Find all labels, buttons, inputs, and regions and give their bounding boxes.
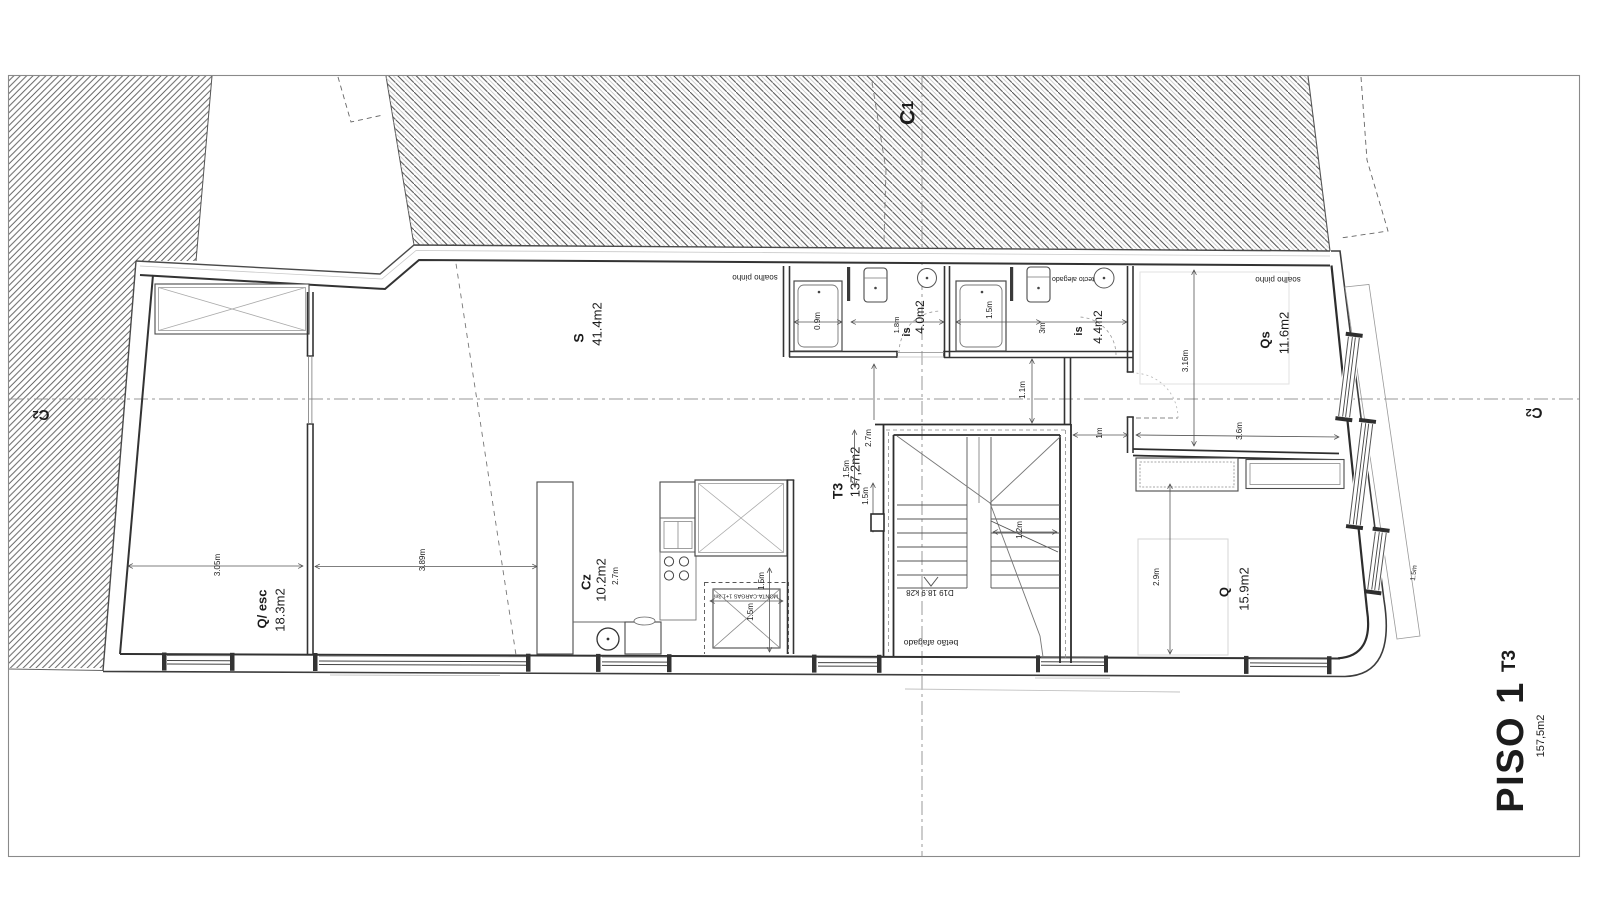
svg-text:soalho pinho: soalho pinho	[732, 273, 778, 282]
svg-text:1m: 1m	[1095, 427, 1104, 438]
svg-text:2.7m: 2.7m	[611, 567, 620, 585]
svg-text:3.16m: 3.16m	[1181, 350, 1190, 373]
svg-text:C2: C2	[33, 406, 50, 423]
svg-text:1.5m: 1.5m	[861, 487, 870, 505]
svg-text:3m: 3m	[1038, 322, 1047, 333]
svg-text:157,5m2: 157,5m2	[1535, 715, 1547, 758]
svg-text:11.6m2: 11.6m2	[1276, 312, 1291, 354]
svg-text:15.9m2: 15.9m2	[1236, 567, 1251, 610]
svg-text:C1: C1	[897, 101, 920, 125]
svg-text:3.89m: 3.89m	[418, 549, 427, 572]
svg-text:is: is	[1073, 326, 1085, 335]
svg-text:2.7m: 2.7m	[864, 429, 873, 447]
svg-text:PISO 1: PISO 1	[1490, 681, 1532, 813]
svg-text:Q/ esc: Q/ esc	[254, 589, 269, 628]
svg-text:1.8m: 1.8m	[892, 317, 901, 334]
svg-text:S: S	[571, 333, 587, 342]
svg-text:betão afagado: betão afagado	[904, 638, 959, 648]
svg-text:1.5m: 1.5m	[746, 603, 755, 621]
svg-text:T3: T3	[1499, 650, 1520, 672]
svg-text:1.5m: 1.5m	[985, 301, 994, 319]
svg-text:soalho pinho: soalho pinho	[1255, 275, 1301, 284]
svg-text:MONTA-CARGAS 1+1.3m: MONTA-CARGAS 1+1.3m	[713, 593, 778, 599]
svg-text:Q: Q	[1216, 587, 1231, 597]
svg-text:41.4m2: 41.4m2	[589, 302, 604, 345]
svg-text:3.6m: 3.6m	[1235, 422, 1244, 440]
svg-text:4.0m2: 4.0m2	[913, 300, 927, 334]
svg-text:is: is	[901, 327, 913, 336]
svg-text:2.9m: 2.9m	[1152, 568, 1161, 586]
svg-text:10.2m2: 10.2m2	[593, 558, 608, 601]
svg-text:3.05m: 3.05m	[213, 554, 222, 577]
svg-text:4.4m2: 4.4m2	[1091, 310, 1105, 344]
svg-text:Qs: Qs	[1257, 331, 1272, 348]
svg-text:18.3m2: 18.3m2	[272, 588, 287, 631]
svg-text:1.5m: 1.5m	[842, 460, 851, 478]
svg-text:C2: C2	[1526, 404, 1543, 421]
svg-text:1.5m: 1.5m	[757, 572, 766, 590]
svg-text:1.2m: 1.2m	[1015, 521, 1024, 539]
svg-text:tecto alegado: tecto alegado	[1052, 275, 1094, 282]
svg-text:D19 18.9 k28: D19 18.9 k28	[906, 588, 954, 597]
svg-text:T3: T3	[830, 483, 846, 500]
svg-text:1.1m: 1.1m	[1018, 381, 1027, 399]
svg-text:Cz: Cz	[578, 574, 593, 590]
svg-text:0.9m: 0.9m	[813, 312, 822, 330]
